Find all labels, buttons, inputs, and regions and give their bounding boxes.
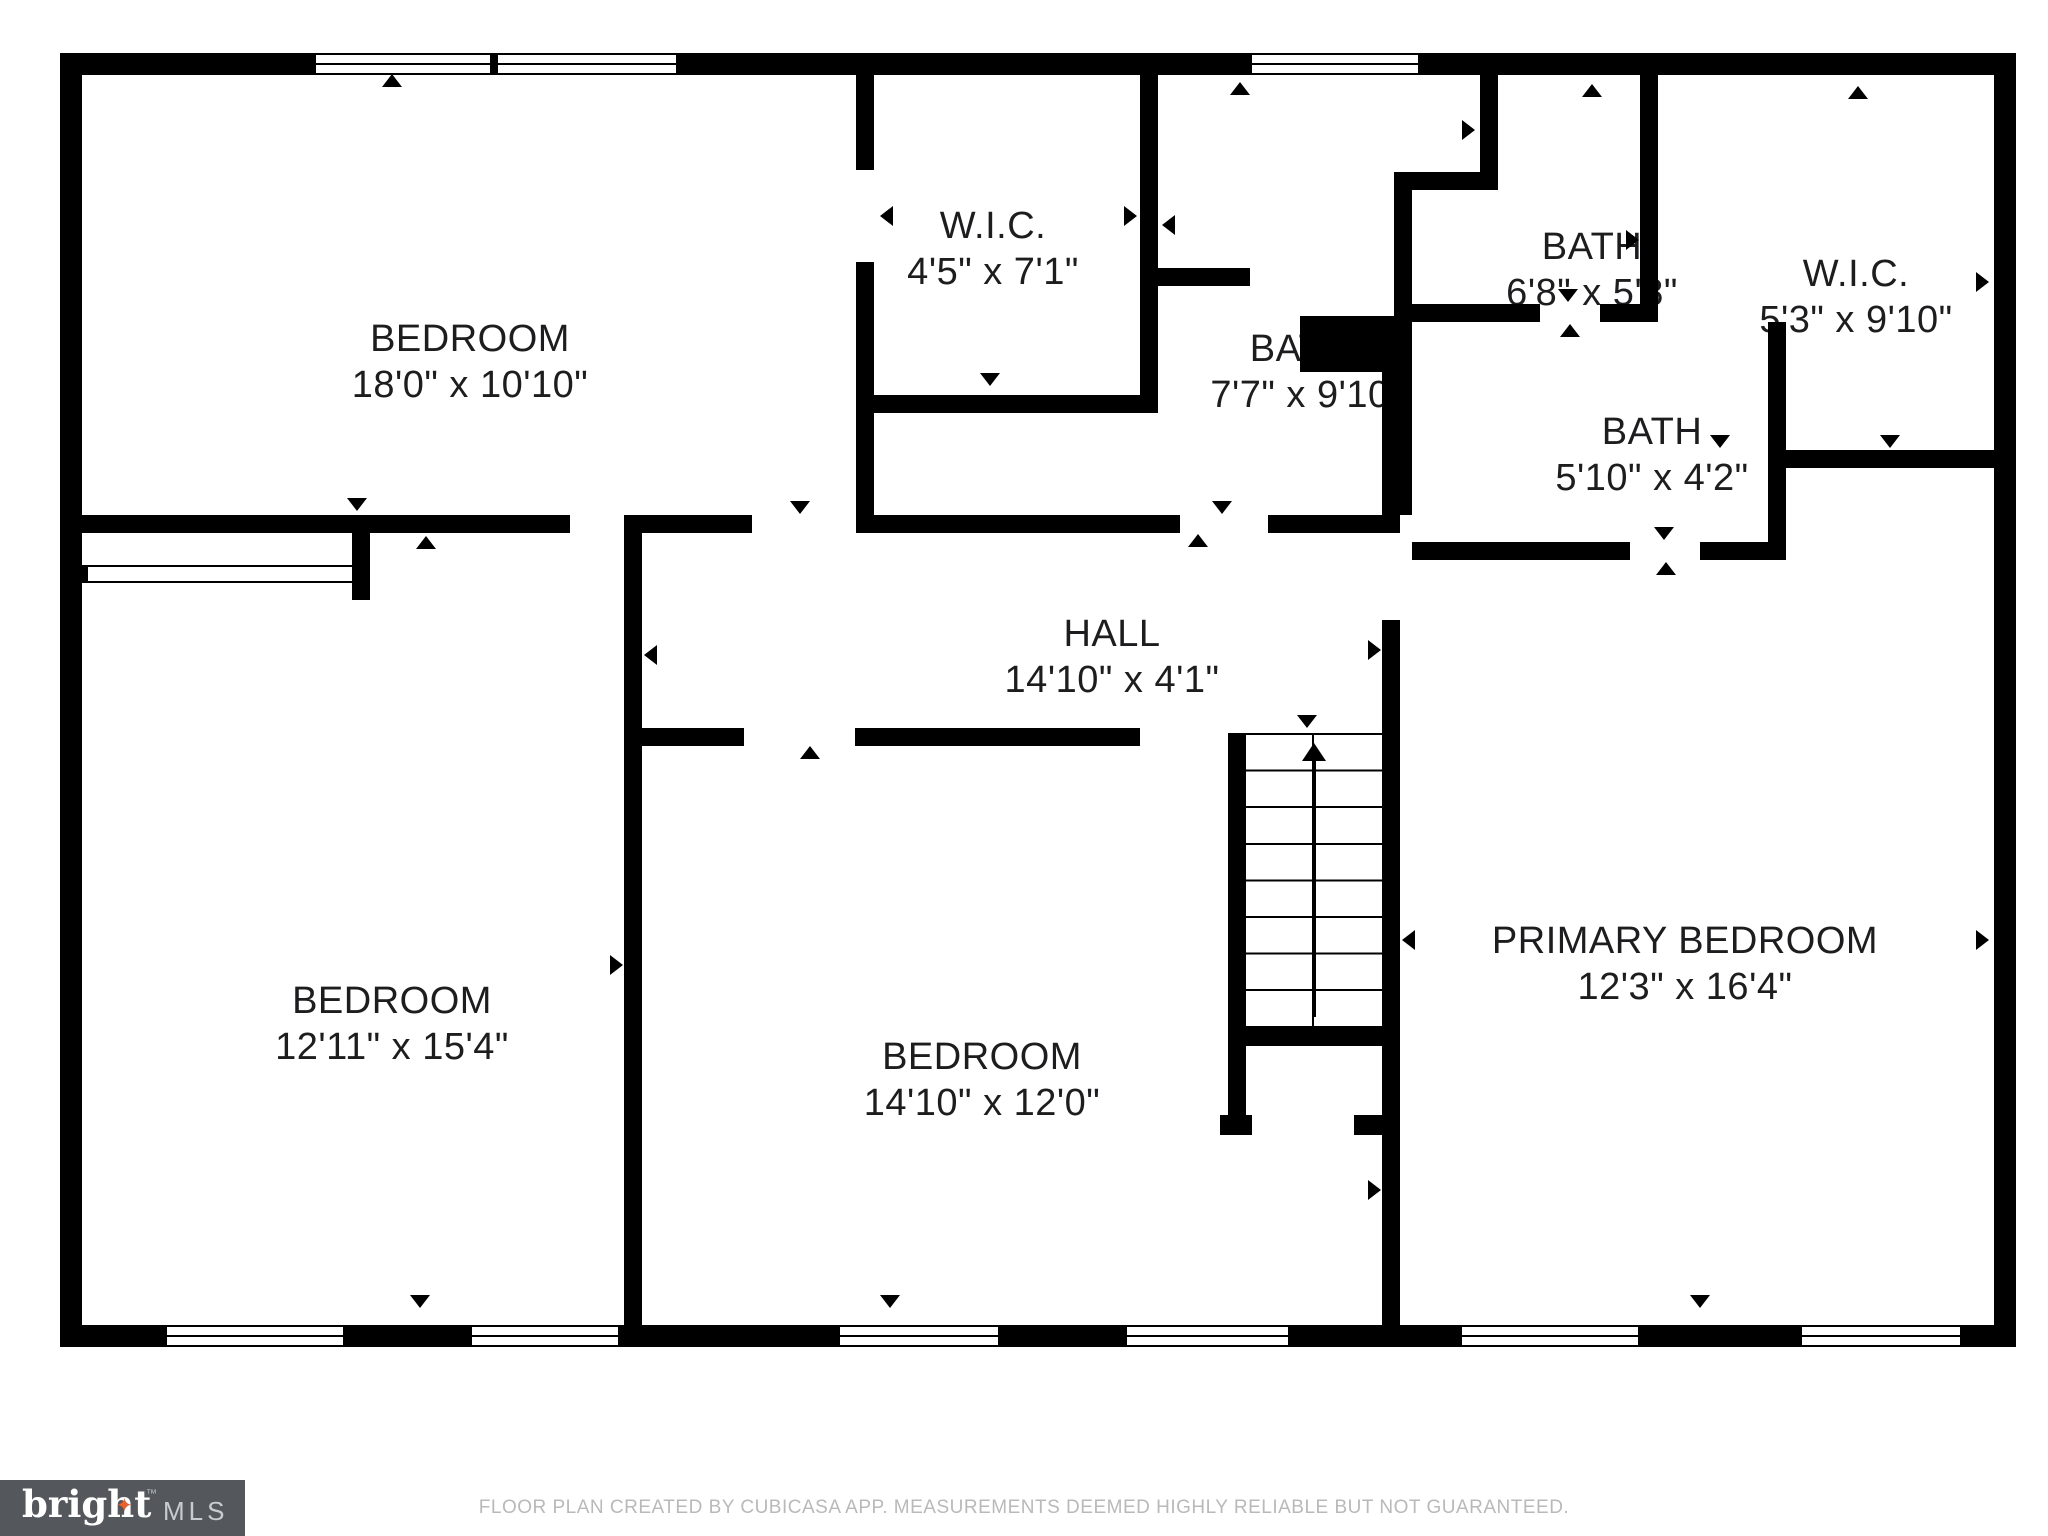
- logo-trademark: ™: [146, 1488, 157, 1500]
- wall-segment: [1480, 75, 1498, 175]
- room-dims: 7'7" x 9'10: [1210, 372, 1389, 418]
- arrow-marker-icon: [880, 1295, 900, 1308]
- wall-segment: [1394, 172, 1498, 190]
- wall-segment: [352, 515, 370, 600]
- arrow-marker-icon: [1848, 86, 1868, 99]
- wall-segment: [1994, 53, 2016, 1347]
- room-label-bedroom-center: BEDROOM 14'10" x 12'0": [864, 1034, 1101, 1126]
- wall-segment: [60, 565, 88, 583]
- arrow-marker-icon: [1368, 640, 1381, 660]
- arrow-marker-icon: [1402, 930, 1415, 950]
- room-name: W.I.C.: [907, 203, 1079, 249]
- room-dims: 5'3" x 9'10": [1759, 297, 1952, 343]
- wall-segment: [370, 515, 570, 533]
- wall-block: [1300, 316, 1400, 372]
- arrow-marker-icon: [980, 373, 1000, 386]
- arrow-marker-icon: [1656, 562, 1676, 575]
- arrow-marker-icon: [68, 243, 81, 263]
- arrow-marker-icon: [1690, 1295, 1710, 1308]
- cased-opening: [88, 565, 352, 583]
- arrow-marker-icon: [1162, 215, 1175, 235]
- window-symbol: [1460, 1325, 1640, 1347]
- arrow-marker-icon: [1368, 1180, 1381, 1200]
- room-name: BEDROOM: [864, 1034, 1101, 1080]
- window-symbol: [470, 1325, 620, 1347]
- wall-segment: [60, 515, 352, 533]
- arrow-marker-icon: [1582, 84, 1602, 97]
- room-dims: 14'10" x 4'1": [1005, 657, 1220, 703]
- arrow-marker-icon: [1124, 206, 1137, 226]
- room-dims: 12'11" x 15'4": [275, 1024, 509, 1070]
- wall-segment: [1228, 1026, 1400, 1046]
- arrow-marker-icon: [790, 501, 810, 514]
- wall-segment: [1140, 75, 1158, 413]
- room-name: PRIMARY BEDROOM: [1492, 918, 1878, 964]
- wall-segment: [642, 515, 752, 533]
- room-label-hall: HALL 14'10" x 4'1": [1005, 611, 1220, 703]
- wall-segment: [1700, 542, 1768, 560]
- wall-segment: [1786, 450, 1994, 468]
- arrow-marker-icon: [1654, 527, 1674, 540]
- stair-direction-arrow: [1313, 759, 1316, 1017]
- window-symbol: [1250, 53, 1420, 75]
- wall-segment: [856, 75, 874, 170]
- window-pane-line: [1252, 63, 1418, 65]
- wall-segment: [1228, 733, 1246, 1026]
- window-symbol: [314, 53, 678, 75]
- room-name: W.I.C.: [1759, 251, 1952, 297]
- wall-segment: [1158, 268, 1250, 286]
- window-pane-line: [167, 1335, 343, 1337]
- arrow-marker-icon: [644, 645, 657, 665]
- wall-segment: [1412, 542, 1630, 560]
- arrow-marker-icon: [1560, 324, 1580, 337]
- arrow-marker-icon: [410, 1295, 430, 1308]
- arrow-marker-icon: [1626, 230, 1639, 250]
- room-name: BEDROOM: [352, 316, 589, 362]
- room-label-primary-bedroom: PRIMARY BEDROOM 12'3" x 16'4": [1492, 918, 1878, 1010]
- room-label-bedroom-topleft: BEDROOM 18'0" x 10'10": [352, 316, 589, 408]
- arrow-marker-icon: [416, 536, 436, 549]
- arrow-marker-icon: [800, 746, 820, 759]
- arrow-marker-icon: [1188, 534, 1208, 547]
- wall-segment: [855, 728, 1140, 746]
- wall-segment: [60, 1325, 2016, 1347]
- arrow-marker-icon: [1558, 289, 1578, 302]
- arrow-marker-icon: [1976, 272, 1989, 292]
- wall-segment: [1394, 304, 1540, 322]
- logo-suffix-text: MLS: [163, 1496, 228, 1527]
- arrow-marker-icon: [382, 74, 402, 87]
- wall-segment: [1382, 372, 1400, 533]
- room-name: BATH: [1555, 409, 1748, 455]
- window-symbol: [838, 1325, 1000, 1347]
- window-pane-line: [840, 1335, 998, 1337]
- wall-segment: [874, 515, 1180, 533]
- arrow-marker-icon: [1230, 82, 1250, 95]
- wall-segment: [624, 515, 642, 1325]
- arrow-marker-icon: [68, 955, 81, 975]
- window-mullion: [490, 55, 498, 73]
- room-dims: 12'3" x 16'4": [1492, 964, 1878, 1010]
- arrow-marker-icon: [1976, 930, 1989, 950]
- room-dims: 14'10" x 12'0": [864, 1080, 1101, 1126]
- room-label-bedroom-bottomleft: BEDROOM 12'11" x 15'4": [275, 978, 509, 1070]
- wall-end: [1354, 1115, 1382, 1135]
- stair-arrow-head-icon: [1302, 743, 1326, 761]
- window-pane-line: [472, 1335, 618, 1337]
- window-symbol: [1800, 1325, 1962, 1347]
- arrow-marker-icon: [347, 498, 367, 511]
- wall-segment: [1768, 322, 1786, 560]
- wall-segment: [1268, 515, 1382, 533]
- wall-segment: [1382, 620, 1400, 1325]
- arrow-marker-icon: [1710, 435, 1730, 448]
- room-label-wic-1: W.I.C. 4'5" x 7'1": [907, 203, 1079, 295]
- window-symbol: [1125, 1325, 1290, 1347]
- room-name: HALL: [1005, 611, 1220, 657]
- floor-plan: BEDROOM 18'0" x 10'10" W.I.C. 4'5" x 7'1…: [0, 0, 2048, 1536]
- arrow-marker-icon: [1398, 238, 1411, 258]
- wall-end: [1220, 1115, 1252, 1135]
- window-pane-line: [1462, 1335, 1638, 1337]
- wall-segment: [1228, 1046, 1246, 1115]
- wall-segment: [856, 262, 874, 533]
- room-name: BEDROOM: [275, 978, 509, 1024]
- brightmls-logo: bright ✦ ™ MLS: [0, 1480, 245, 1536]
- room-dims: 4'5" x 7'1": [907, 249, 1079, 295]
- logo-star-icon: ✦: [116, 1493, 133, 1518]
- wall-segment: [642, 728, 744, 746]
- window-symbol: [165, 1325, 345, 1347]
- staircase: [1246, 733, 1382, 1026]
- arrow-marker-icon: [880, 206, 893, 226]
- arrow-marker-icon: [1212, 501, 1232, 514]
- footer-disclaimer: FLOOR PLAN CREATED BY CUBICASA APP. MEAS…: [0, 1497, 2048, 1519]
- window-pane-line: [1802, 1335, 1960, 1337]
- arrow-marker-icon: [1297, 715, 1317, 728]
- room-label-bath-3: BATH 5'10" x 4'2": [1555, 409, 1748, 501]
- wall-segment: [1640, 75, 1658, 322]
- room-label-wic-2: W.I.C. 5'3" x 9'10": [1759, 251, 1952, 343]
- arrow-marker-icon: [1880, 435, 1900, 448]
- window-pane-line: [1127, 1335, 1288, 1337]
- wall-segment: [874, 395, 1158, 413]
- arrow-marker-icon: [1462, 120, 1475, 140]
- room-dims: 5'10" x 4'2": [1555, 455, 1748, 501]
- room-dims: 18'0" x 10'10": [352, 362, 589, 408]
- arrow-marker-icon: [610, 955, 623, 975]
